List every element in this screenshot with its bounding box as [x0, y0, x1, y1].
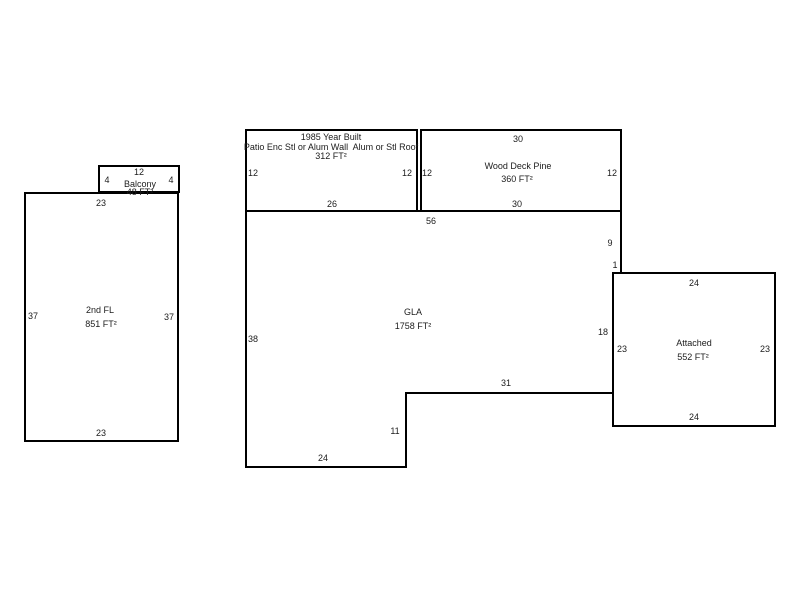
- second-floor-dim-left: 37: [28, 311, 38, 321]
- second-floor-dim-bottom: 23: [96, 428, 106, 438]
- gla-dim-notch: 1: [612, 260, 617, 270]
- gla-dim-right-lower: 18: [598, 327, 608, 337]
- attached-outline: [613, 273, 775, 426]
- second-floor-dim-right: 37: [164, 312, 174, 322]
- second-floor-outline: [25, 193, 178, 441]
- gla-dim-step: 11: [390, 426, 399, 436]
- gla-dim-right-upper: 9: [607, 238, 612, 248]
- attached-dim-right: 23: [760, 344, 770, 354]
- attached-dim-bottom: 24: [689, 412, 699, 422]
- attached-dim-top: 24: [689, 278, 699, 288]
- gla-dim-bottom-right: 31: [501, 378, 511, 388]
- gla-name-label: GLA: [404, 307, 422, 317]
- second-floor-name-label: 2nd FL: [86, 305, 114, 315]
- patio-dim-left: 12: [248, 168, 258, 178]
- sketch-outlines: [0, 0, 800, 600]
- attached-area-label: 552 FT²: [677, 352, 709, 362]
- gla-outline: [246, 211, 621, 467]
- attached-dim-left: 23: [617, 344, 627, 354]
- patio-year-built-label: 1985 Year Built: [301, 132, 362, 142]
- floorplan-sketch: 12 4 4 Balcony 48 FT² 23 37 37 2nd FL 85…: [0, 0, 800, 600]
- balcony-dim-left: 4: [104, 175, 109, 185]
- balcony-dim-right: 4: [168, 175, 173, 185]
- patio-dim-right: 12: [402, 168, 412, 178]
- patio-area-label: 312 FT²: [315, 151, 347, 161]
- gla-dim-bottom: 24: [318, 453, 328, 463]
- balcony-dim-top: 12: [134, 167, 144, 177]
- wood-deck-dim-left: 12: [422, 168, 432, 178]
- wood-deck-dim-right: 12: [607, 168, 617, 178]
- second-floor-dim-top: 23: [96, 198, 106, 208]
- patio-dim-bottom: 26: [327, 199, 337, 209]
- wood-deck-area-label: 360 FT²: [501, 174, 533, 184]
- gla-area-label: 1758 FT²: [395, 321, 432, 331]
- second-floor-area-label: 851 FT²: [85, 319, 117, 329]
- gla-dim-top: 56: [426, 216, 436, 226]
- wood-deck-dim-bottom: 30: [512, 199, 522, 209]
- gla-dim-left: 38: [248, 334, 258, 344]
- wood-deck-name-label: Wood Deck Pine: [485, 161, 552, 171]
- wood-deck-dim-top: 30: [513, 134, 523, 144]
- balcony-area-label: 48 FT²: [127, 187, 154, 197]
- attached-name-label: Attached: [676, 338, 712, 348]
